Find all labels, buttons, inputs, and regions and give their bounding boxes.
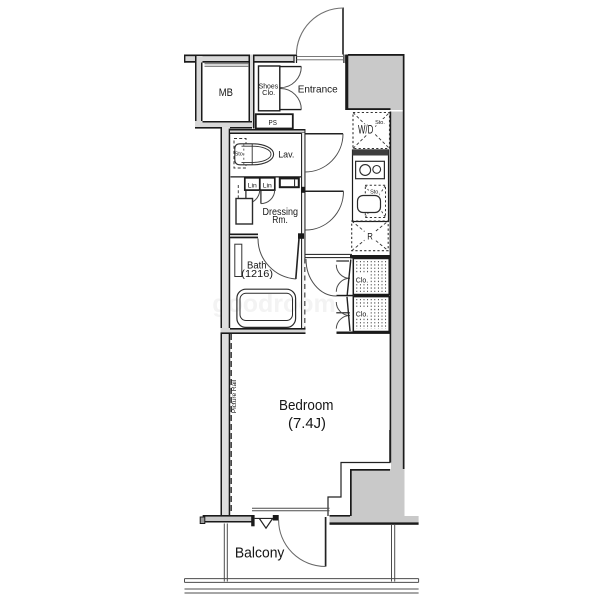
svg-text:goodroom: goodroom — [212, 290, 336, 318]
svg-text:Clo.: Clo. — [356, 278, 369, 285]
svg-text:MB: MB — [219, 87, 233, 99]
svg-text:Lav.: Lav. — [278, 149, 294, 160]
svg-text:PS: PS — [269, 118, 277, 127]
svg-text:Picture Rail: Picture Rail — [231, 379, 238, 413]
svg-text:Lin: Lin — [263, 182, 272, 189]
svg-text:Clo.: Clo. — [262, 90, 275, 97]
svg-text:Sto.: Sto. — [235, 152, 245, 158]
svg-text:W/D: W/D — [358, 125, 373, 137]
svg-text:(1216): (1216) — [241, 269, 273, 280]
svg-text:Sto.: Sto. — [370, 190, 380, 196]
svg-text:R: R — [367, 231, 373, 241]
svg-text:Lin: Lin — [248, 182, 257, 189]
svg-text:(7.4J): (7.4J) — [288, 415, 326, 432]
svg-text:Entrance: Entrance — [298, 84, 338, 96]
svg-text:Balcony: Balcony — [235, 545, 285, 561]
svg-text:Rm.: Rm. — [272, 215, 288, 226]
svg-text:Sto.: Sto. — [375, 120, 385, 126]
svg-text:Clo.: Clo. — [356, 312, 369, 319]
svg-text:Bedroom: Bedroom — [279, 397, 334, 414]
